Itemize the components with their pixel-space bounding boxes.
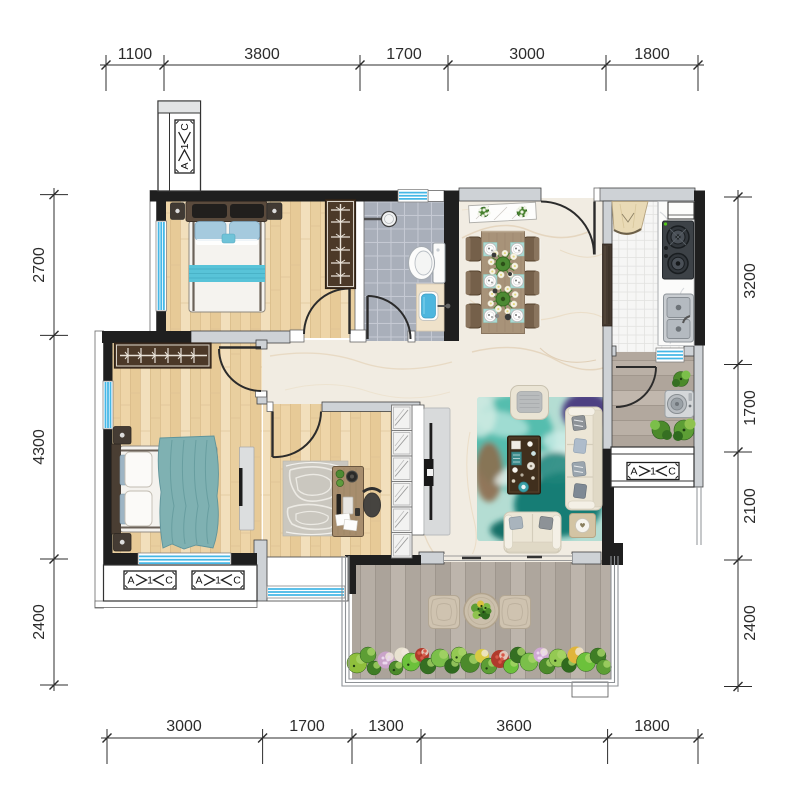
svg-text:A: A	[195, 575, 202, 587]
svg-text:1800: 1800	[634, 718, 670, 735]
svg-text:1800: 1800	[634, 46, 670, 63]
svg-text:1700: 1700	[386, 46, 422, 63]
svg-text:2100: 2100	[742, 488, 759, 524]
svg-text:A: A	[630, 466, 637, 478]
svg-text:A: A	[179, 162, 191, 169]
svg-text:4300: 4300	[31, 429, 48, 465]
svg-text:A: A	[127, 575, 134, 587]
svg-text:C: C	[179, 123, 191, 131]
svg-text:2700: 2700	[31, 247, 48, 283]
svg-text:C: C	[668, 466, 676, 478]
svg-text:2400: 2400	[31, 604, 48, 640]
svg-text:3200: 3200	[742, 263, 759, 299]
svg-text:1700: 1700	[289, 718, 325, 735]
svg-text:1100: 1100	[118, 46, 153, 63]
svg-text:3000: 3000	[509, 46, 545, 63]
svg-text:C: C	[165, 575, 173, 587]
svg-text:1: 1	[650, 466, 656, 478]
svg-text:C: C	[233, 575, 241, 587]
svg-text:3600: 3600	[496, 718, 532, 735]
svg-text:1700: 1700	[742, 390, 759, 426]
svg-text:3800: 3800	[244, 46, 280, 63]
svg-text:3000: 3000	[166, 718, 202, 735]
svg-text:1: 1	[179, 143, 191, 149]
svg-text:1300: 1300	[368, 718, 404, 735]
svg-text:1: 1	[147, 575, 153, 587]
svg-text:2400: 2400	[742, 605, 759, 641]
svg-text:1: 1	[215, 575, 221, 587]
